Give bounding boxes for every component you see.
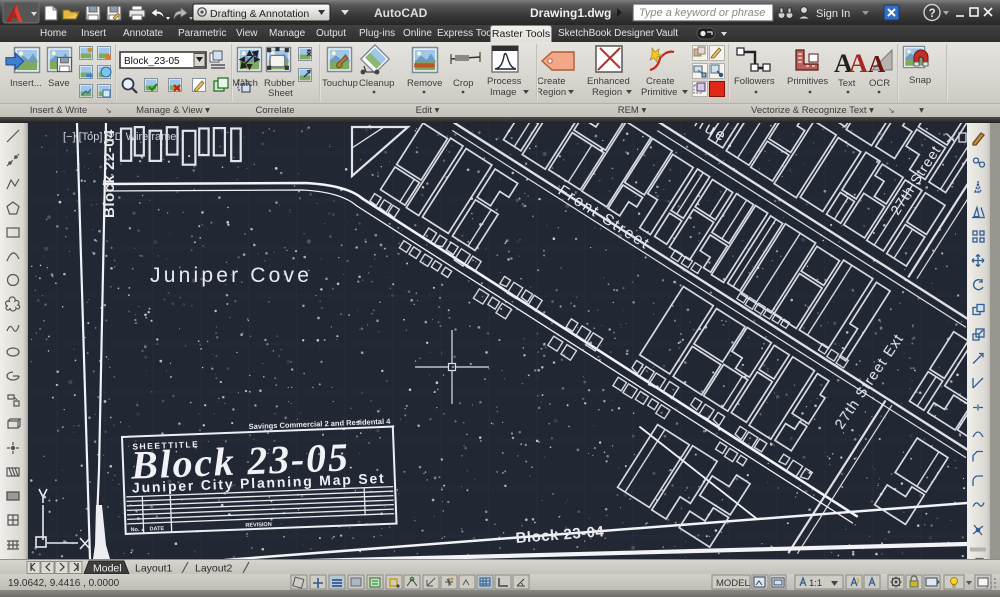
svg-text:Type a keyword or phrase: Type a keyword or phrase <box>639 7 765 19</box>
svg-text:Model: Model <box>93 563 122 575</box>
svg-text:Followers: Followers <box>734 76 775 87</box>
svg-text:Match: Match <box>232 78 258 89</box>
svg-text:Snap: Snap <box>909 75 931 86</box>
svg-text:Region: Region <box>536 87 566 98</box>
svg-text:Cleanup: Cleanup <box>359 78 394 89</box>
svg-text:Create: Create <box>537 76 566 87</box>
svg-text:Save: Save <box>48 78 70 89</box>
svg-text:Primitives: Primitives <box>787 76 828 87</box>
svg-text:Remove: Remove <box>407 78 442 89</box>
svg-text:Primitive: Primitive <box>641 87 677 98</box>
svg-text:Enhanced: Enhanced <box>587 76 630 87</box>
svg-text:Image: Image <box>490 87 516 98</box>
svg-text:Layout2: Layout2 <box>195 563 233 575</box>
svg-text:No.: No. <box>130 527 140 533</box>
svg-text:AutoCAD: AutoCAD <box>374 6 428 20</box>
svg-text:Text: Text <box>838 78 856 89</box>
svg-text:Layout1: Layout1 <box>135 563 173 575</box>
svg-text:?: ? <box>929 8 936 20</box>
svg-text:Insert...: Insert... <box>10 78 42 89</box>
svg-text:REVISION: REVISION <box>245 522 272 529</box>
svg-text:Juniper Cove: Juniper Cove <box>150 264 312 287</box>
svg-text:Create: Create <box>646 76 675 87</box>
svg-text:Drafting & Annotation: Drafting & Annotation <box>210 8 309 20</box>
svg-text:Sign In: Sign In <box>816 8 850 20</box>
svg-text:Sheet: Sheet <box>268 88 293 99</box>
svg-text:A: A <box>849 49 868 78</box>
svg-text:Region: Region <box>592 87 622 98</box>
svg-text:Drawing1.dwg: Drawing1.dwg <box>530 6 611 20</box>
svg-text:Block_23-05: Block_23-05 <box>124 56 180 67</box>
svg-text:A: A <box>868 52 886 78</box>
svg-text:19.0642, 9.4416 , 0.0000: 19.0642, 9.4416 , 0.0000 <box>8 578 120 589</box>
svg-text:1:1: 1:1 <box>809 578 822 589</box>
svg-text:Touchup: Touchup <box>322 78 358 89</box>
svg-text:MODEL: MODEL <box>716 578 750 589</box>
svg-text:DATE: DATE <box>149 526 164 533</box>
svg-text:Process: Process <box>487 76 522 87</box>
svg-text:[−] [Top] [2D Wireframe]: [−] [Top] [2D Wireframe] <box>63 131 179 143</box>
svg-text:Crop: Crop <box>453 78 474 89</box>
svg-text:OCR: OCR <box>869 78 890 89</box>
